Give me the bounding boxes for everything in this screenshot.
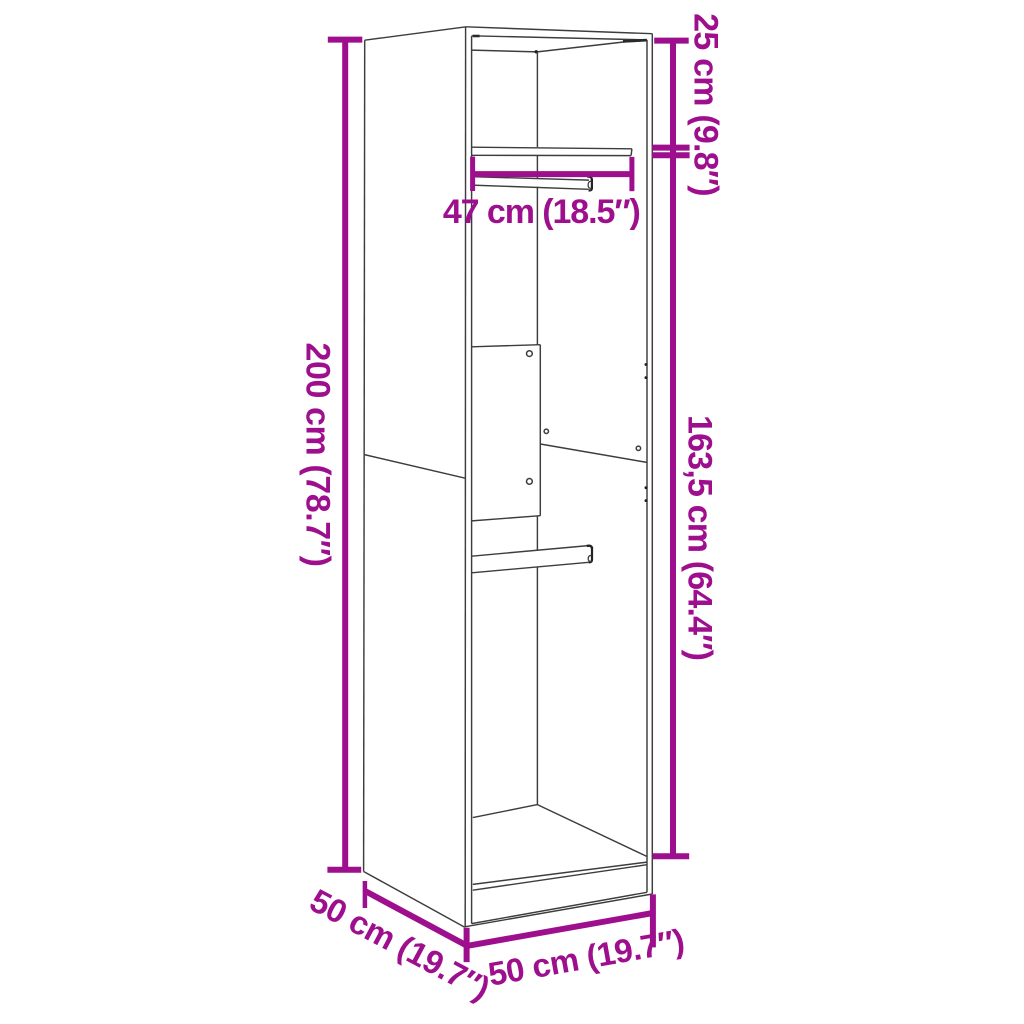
svg-text:163,5 cm (64.4″): 163,5 cm (64.4″) (680, 415, 718, 660)
svg-text:47 cm (18.5″): 47 cm (18.5″) (443, 193, 640, 231)
svg-text:50 cm (19.7″): 50 cm (19.7″) (485, 922, 686, 993)
svg-text:200 cm (78.7″): 200 cm (78.7″) (299, 343, 337, 567)
svg-text:25 cm (9.8″): 25 cm (9.8″) (687, 13, 725, 195)
